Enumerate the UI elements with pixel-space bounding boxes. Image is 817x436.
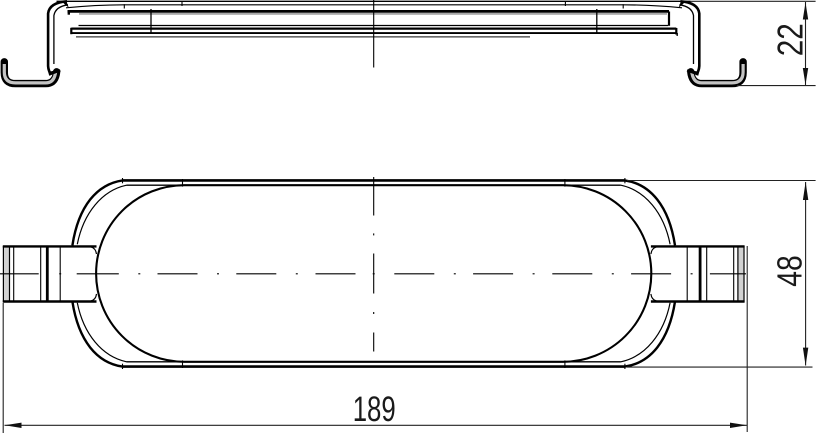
svg-text:48: 48 bbox=[770, 255, 809, 287]
svg-text:189: 189 bbox=[353, 389, 396, 429]
svg-text:22: 22 bbox=[769, 23, 810, 56]
